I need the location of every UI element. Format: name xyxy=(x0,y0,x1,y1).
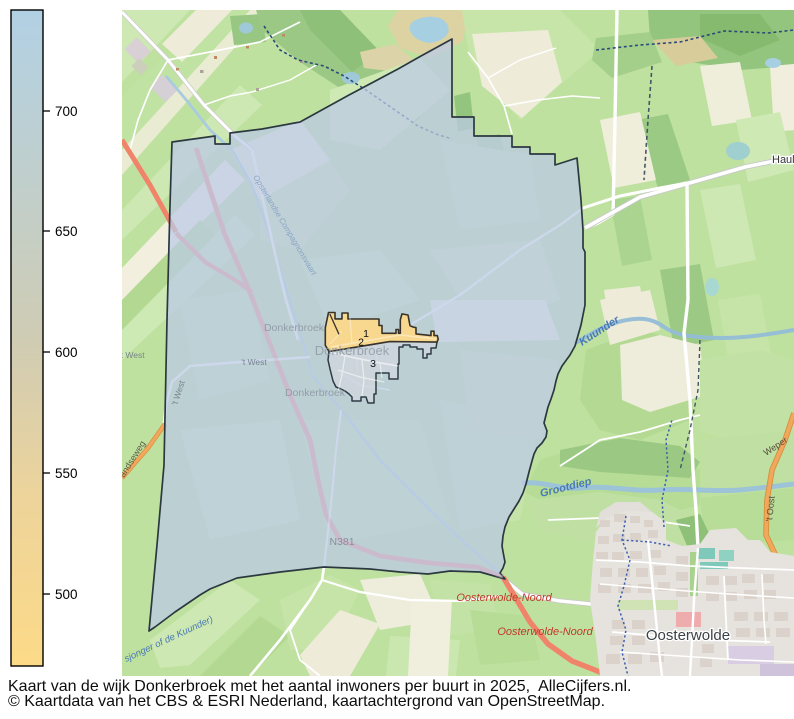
svg-text:Haule: Haule xyxy=(772,154,794,166)
svg-text:Donkerbroek: Donkerbroek xyxy=(285,387,346,399)
svg-text:2: 2 xyxy=(358,337,364,349)
svg-text:550: 550 xyxy=(55,466,78,481)
svg-text:600: 600 xyxy=(55,345,78,360)
svg-text:Oosterwolde-Noord: Oosterwolde-Noord xyxy=(456,592,552,604)
svg-text:N381: N381 xyxy=(329,536,354,548)
svg-text:'t West: 't West xyxy=(119,350,145,360)
svg-text:700: 700 xyxy=(55,104,78,119)
svg-text:500: 500 xyxy=(55,587,78,602)
svg-text:Donkerbroek: Donkerbroek xyxy=(315,343,390,358)
svg-text:3: 3 xyxy=(370,358,376,370)
svg-text:Oosterwolde-Noord: Oosterwolde-Noord xyxy=(497,626,593,638)
svg-text:Oosterwolde: Oosterwolde xyxy=(646,627,730,644)
svg-text:1: 1 xyxy=(363,328,369,340)
svg-text:'t West: 't West xyxy=(241,357,267,367)
svg-text:Donkerbroek: Donkerbroek xyxy=(264,322,325,334)
svg-text:650: 650 xyxy=(55,224,78,239)
